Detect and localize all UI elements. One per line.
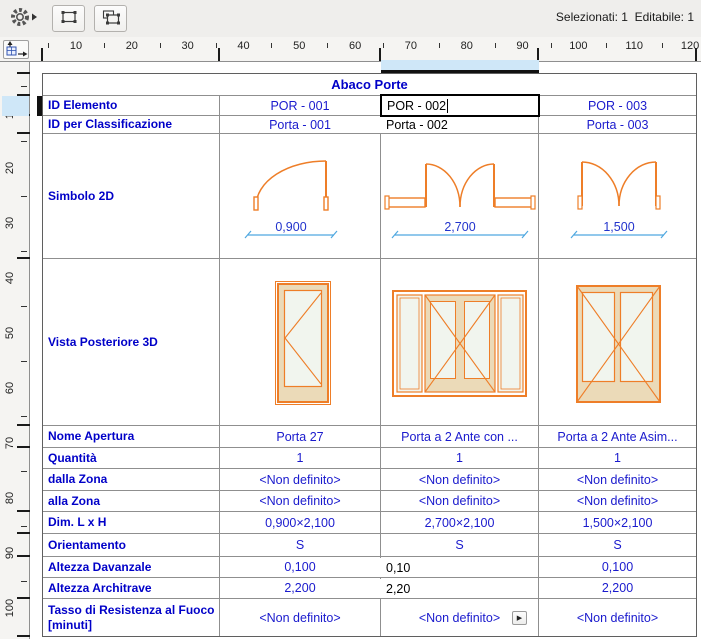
cell-quantita-door3[interactable]: 1 xyxy=(539,448,696,469)
ruler-number: 90 xyxy=(4,542,20,564)
ruler-number: 30 xyxy=(174,40,202,52)
double-marquee-icon xyxy=(101,9,121,29)
ruler-number: 20 xyxy=(4,157,20,179)
ruler-number: 20 xyxy=(118,40,146,52)
ruler-tick xyxy=(21,581,27,582)
id-edit-text: POR - 002 xyxy=(387,99,446,113)
row-label-altezza-davanzale: Altezza Davanzale xyxy=(43,557,220,578)
row-selection-edge xyxy=(37,96,42,116)
cell-class-door1[interactable]: Porta - 001 xyxy=(220,116,381,134)
cell-alla-door3[interactable]: <Non definito> xyxy=(539,491,696,512)
ruler-number: 120 xyxy=(676,40,701,52)
cell-id-door1[interactable]: POR - 001 xyxy=(220,96,381,116)
selection-marquee-icon xyxy=(59,9,79,28)
row-label-dim-lxh: Dim. L x H xyxy=(43,512,220,534)
ruler-tick xyxy=(17,424,30,426)
ruler-number: 30 xyxy=(4,212,20,234)
schedule-window: Selezionati: 1 Editabile: 1 102030405060… xyxy=(0,0,701,639)
ruler-number: 10 xyxy=(62,40,90,52)
ruler-tick xyxy=(48,43,49,48)
row-label-id-classificazione: ID per Classificazione xyxy=(43,116,220,134)
ruler-number: 60 xyxy=(341,40,369,52)
architrave-edit-field[interactable]: 2,20 xyxy=(371,579,537,598)
cell-view3d-door1[interactable] xyxy=(220,259,381,426)
ruler-tick xyxy=(17,257,30,259)
ruler-tick xyxy=(21,141,27,142)
ruler-tick xyxy=(21,306,27,307)
ruler-tick xyxy=(439,43,440,48)
cell-architrave-door1[interactable]: 2,200 xyxy=(220,578,381,599)
scheme-settings-button[interactable] xyxy=(6,5,42,32)
selection-status: Selezionati: 1 Editabile: 1 xyxy=(556,10,694,24)
cell-dim-door1[interactable]: 0,900×2,100 xyxy=(220,512,381,534)
cell-view3d-door2[interactable] xyxy=(381,259,539,426)
ruler-tick xyxy=(327,43,328,48)
ruler-tick xyxy=(21,251,27,252)
ruler-number: 80 xyxy=(4,487,20,509)
ruler-tick xyxy=(21,416,27,417)
ruler-number: 100 xyxy=(4,597,20,619)
ruler-origin-button[interactable] xyxy=(3,40,29,59)
ruler-tick xyxy=(21,471,27,472)
top-ruler-selection-edge xyxy=(381,70,539,73)
cell-alla-door2[interactable]: <Non definito> xyxy=(381,491,539,512)
ruler-tick xyxy=(17,72,30,74)
id-edit-field[interactable]: POR - 002 xyxy=(380,94,540,117)
ruler-tick xyxy=(21,196,27,197)
cell-dim-door2[interactable]: 2,700×2,100 xyxy=(381,512,539,534)
ruler-number: 40 xyxy=(4,267,20,289)
ruler-tick xyxy=(383,43,384,48)
cell-symbol2d-door1[interactable] xyxy=(220,134,381,259)
class-id-edit-field[interactable]: Porta - 002 xyxy=(373,117,537,133)
ruler-tick xyxy=(17,635,30,637)
table-origin-icon xyxy=(4,40,28,60)
ruler-tick xyxy=(662,43,663,48)
ruler-tick xyxy=(17,446,30,448)
ruler-number: 50 xyxy=(4,322,20,344)
row-label-orientamento: Orientamento xyxy=(43,534,220,557)
ruler-number: 110 xyxy=(620,40,648,52)
ruler-number: 60 xyxy=(4,377,20,399)
ruler-tick xyxy=(160,43,161,48)
cell-quantita-door2[interactable]: 1 xyxy=(381,448,539,469)
ruler-tick xyxy=(551,43,552,48)
cell-davanzale-door1[interactable]: 0,100 xyxy=(220,557,381,578)
cell-dim-door3[interactable]: 1,500×2,100 xyxy=(539,512,696,534)
row-label-nome-apertura: Nome Apertura xyxy=(43,426,220,448)
cell-tasso-door3[interactable]: <Non definito> xyxy=(539,599,696,636)
row-label-id-elemento: ID Elemento xyxy=(43,96,220,116)
row-label-vista-3d: Vista Posteriore 3D xyxy=(43,259,220,426)
ruler-number: 90 xyxy=(509,40,537,52)
cell-alla-door1[interactable]: <Non definito> xyxy=(220,491,381,512)
ruler-tick xyxy=(21,526,27,527)
ruler-tick xyxy=(495,43,496,48)
cell-orient-door2[interactable]: S xyxy=(381,534,539,557)
tasso-flyout-button[interactable]: ▶ xyxy=(512,611,527,625)
row-label-dalla-zona: dalla Zona xyxy=(43,469,220,491)
cell-nome-door1[interactable]: Porta 27 xyxy=(220,426,381,448)
door-schedule-table: Abaco Porte ID Elemento POR - 001 POR - … xyxy=(42,73,697,637)
ruler-tick xyxy=(17,510,30,512)
cell-symbol2d-door3[interactable] xyxy=(539,134,696,259)
row-label-tasso-fuoco: Tasso di Resistenza al Fuoco [minuti] xyxy=(43,599,220,636)
cell-dalla-door2[interactable]: <Non definito> xyxy=(381,469,539,491)
cell-nome-door3[interactable]: Porta a 2 Ante Asim... xyxy=(539,426,696,448)
row-label-alla-zona: alla Zona xyxy=(43,491,220,512)
ruler-tick xyxy=(104,43,105,48)
cell-nome-door2[interactable]: Porta a 2 Ante con ... xyxy=(381,426,539,448)
cell-view3d-door3[interactable] xyxy=(539,259,696,426)
table-title: Abaco Porte xyxy=(43,74,696,96)
cell-orient-door3[interactable]: S xyxy=(539,534,696,557)
row-label-quantita: Quantità xyxy=(43,448,220,469)
cell-tasso-door1[interactable]: <Non definito> xyxy=(220,599,381,636)
ruler-number: 80 xyxy=(453,40,481,52)
ruler-number: 40 xyxy=(229,40,257,52)
ruler-tick xyxy=(17,555,30,557)
ruler-number: 70 xyxy=(397,40,425,52)
ruler-tick xyxy=(218,48,220,61)
ruler-tick xyxy=(271,43,272,48)
row-label-altezza-architrave: Altezza Architrave xyxy=(43,578,220,599)
toolbar: Selezionati: 1 Editabile: 1 xyxy=(0,0,701,37)
cell-architrave-door3[interactable]: 2,200 xyxy=(539,578,696,599)
text-caret xyxy=(447,99,448,113)
ruler-tick xyxy=(216,43,217,48)
ruler-tick xyxy=(606,43,607,48)
flyout-arrow-icon xyxy=(32,14,37,21)
edit-selection-button[interactable] xyxy=(52,5,85,32)
ruler-tick xyxy=(41,48,43,61)
ruler-tick xyxy=(17,132,30,134)
row-label-simbolo-2d: Simbolo 2D xyxy=(43,134,220,259)
ruler-number: 70 xyxy=(4,432,20,454)
cell-quantita-door1[interactable]: 1 xyxy=(220,448,381,469)
gear-icon xyxy=(8,5,40,32)
select-elements-button[interactable] xyxy=(94,5,127,32)
ruler-tick xyxy=(17,532,30,534)
ruler-number: 100 xyxy=(564,40,592,52)
top-ruler: 102030405060708090100110120 xyxy=(0,37,701,62)
cell-orient-door1[interactable]: S xyxy=(220,534,381,557)
right-arrow-icon: ▶ xyxy=(517,614,522,622)
ruler-tick xyxy=(17,597,30,599)
ruler-tick xyxy=(695,48,697,61)
cell-davanzale-door3[interactable]: 0,100 xyxy=(539,557,696,578)
ruler-tick xyxy=(21,361,27,362)
ruler-tick xyxy=(21,86,27,87)
cell-dalla-door1[interactable]: <Non definito> xyxy=(220,469,381,491)
cell-id-door3[interactable]: POR - 003 xyxy=(539,96,696,116)
cell-symbol2d-door2[interactable] xyxy=(381,134,539,259)
cell-dalla-door3[interactable]: <Non definito> xyxy=(539,469,696,491)
cell-class-door3[interactable]: Porta - 003 xyxy=(539,116,696,134)
ruler-number: 50 xyxy=(285,40,313,52)
left-ruler: 102030405060708090100 xyxy=(0,62,30,639)
davanzale-edit-field[interactable]: 0,10 xyxy=(371,558,537,577)
left-ruler-selection-highlight xyxy=(2,96,29,116)
